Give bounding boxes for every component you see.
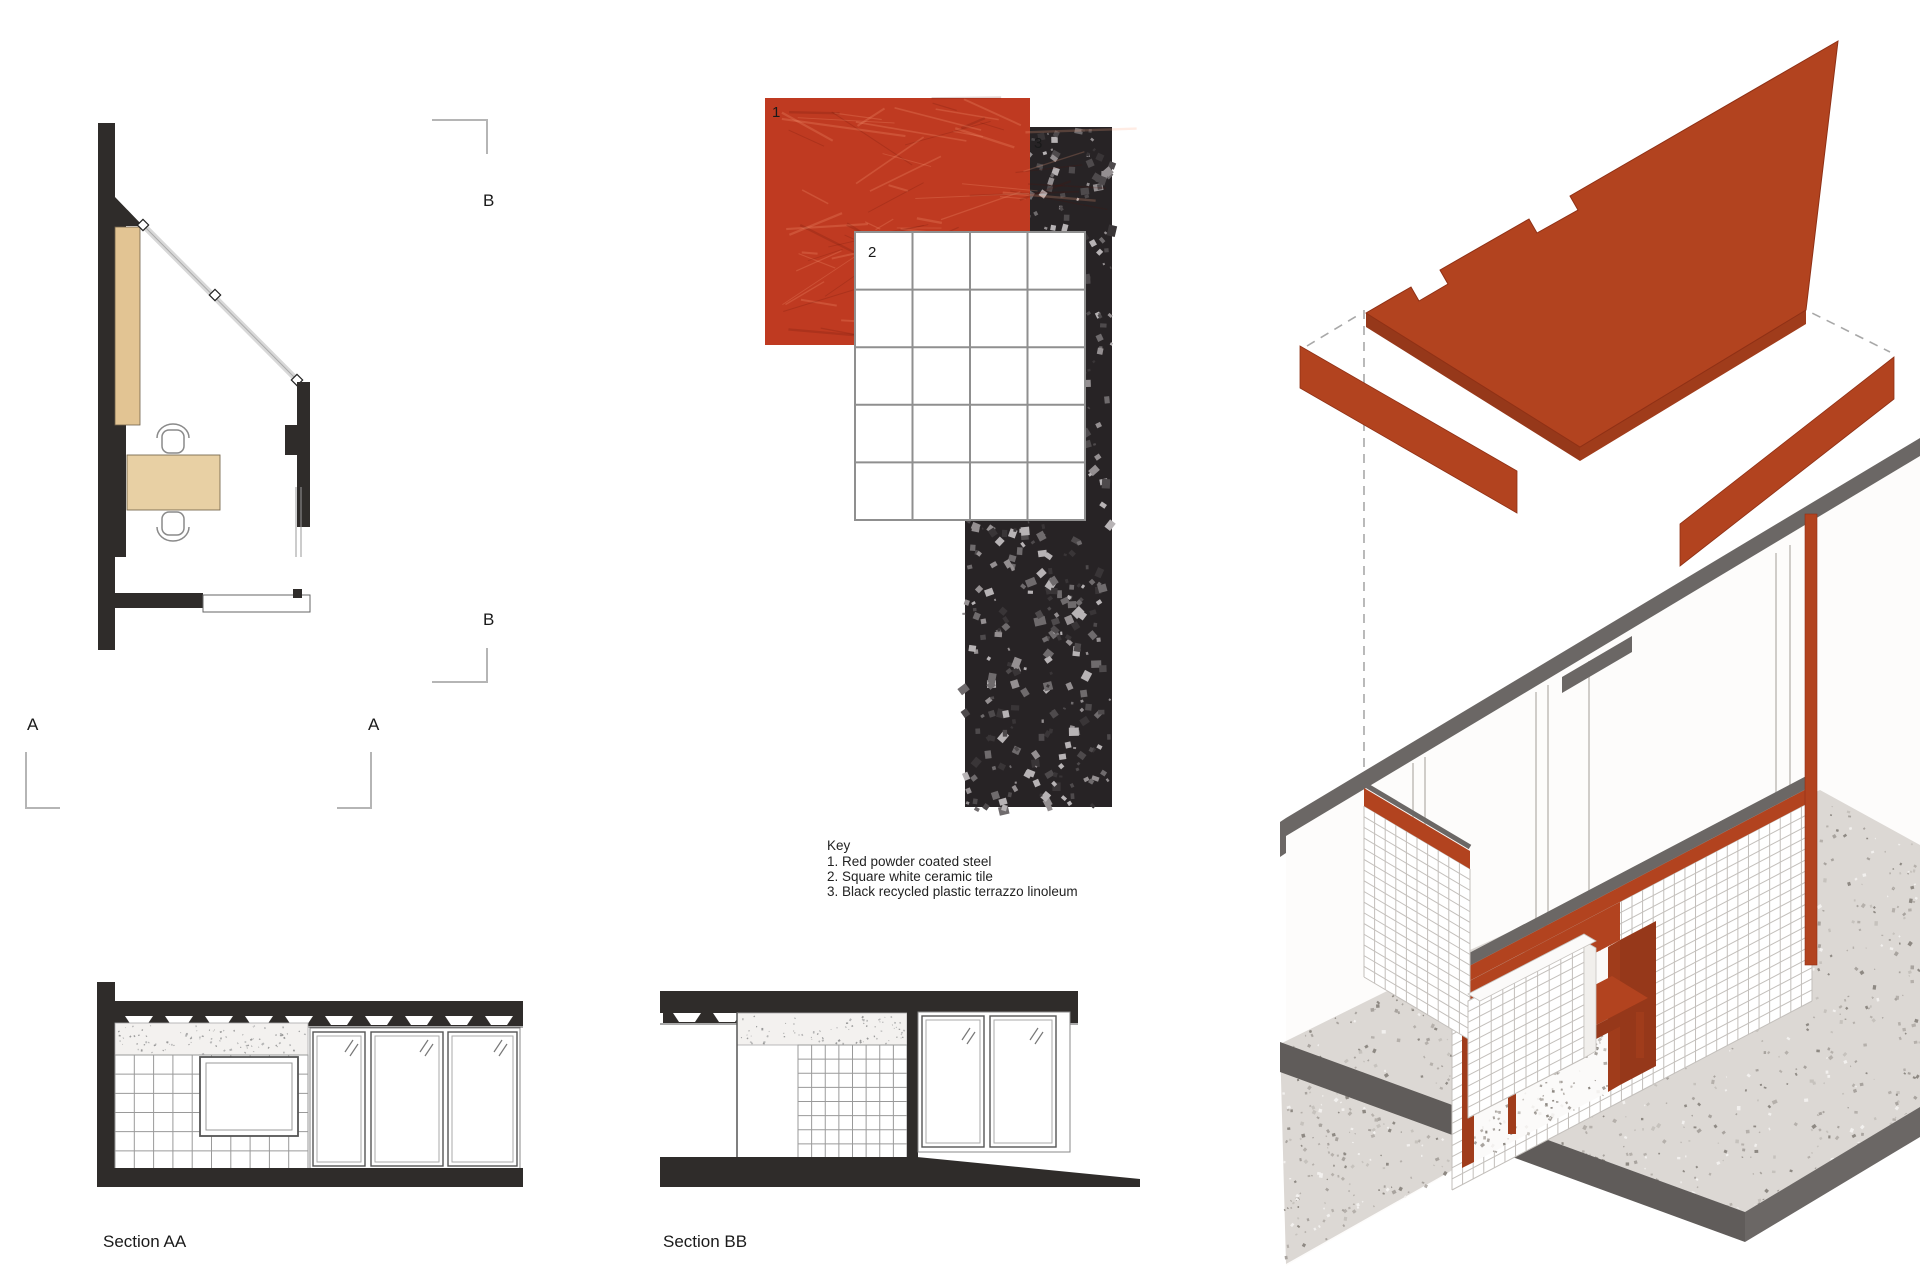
section-bb-drawing: Section BB: [660, 991, 1140, 1251]
section-bb-wall: [907, 1010, 918, 1160]
section-marker-b-bottom: B: [483, 610, 494, 629]
key-item: 2. Square white ceramic tile: [827, 869, 1078, 884]
plan-chair: [157, 512, 189, 541]
plan-chair: [157, 424, 189, 453]
section-marker-a-left: A: [27, 715, 39, 734]
section-marker-b-top: B: [483, 191, 494, 210]
plan-desk: [127, 455, 220, 510]
swatch-label-terrazzo: 3: [1034, 135, 1042, 152]
key-block: Key 1. Red powder coated steel 2. Square…: [827, 838, 1078, 899]
section-bb-floor-ramp: [660, 1157, 1140, 1187]
axon-roof-assembly: [1300, 41, 1894, 566]
key-heading: Key: [827, 838, 1078, 853]
key-item: 1. Red powder coated steel: [827, 854, 1078, 869]
section-aa-glazing: [313, 1032, 517, 1166]
roof-plate: [1366, 41, 1838, 447]
axon-red-door-frame: [1805, 514, 1817, 965]
counter-leg: [1636, 1012, 1644, 1058]
drawing-sheet: 1 2 3: [0, 0, 1920, 1280]
plan-glazed-wall: [137, 219, 302, 385]
section-cut-brackets: [26, 120, 487, 808]
key-item: 3. Black recycled plastic terrazzo linol…: [827, 884, 1078, 899]
section-bb-label: Section BB: [663, 1232, 747, 1251]
axonometric-drawing: [1280, 41, 1920, 1266]
section-marker-a-right: A: [368, 715, 380, 734]
section-aa-label: Section AA: [103, 1232, 187, 1251]
swatch-label-tile: 2: [868, 244, 876, 261]
material-swatch-tile: [855, 232, 1085, 520]
swatch-label-red: 1: [772, 104, 780, 121]
section-aa-drawing: Section AA: [97, 982, 523, 1251]
architectural-drawing: 1 2 3: [0, 0, 1920, 1280]
axon-room-volume: [1280, 438, 1920, 1266]
floor-plan: B B A A: [26, 120, 494, 808]
plan-west-wall: [98, 123, 115, 650]
plan-wood-panel: [115, 227, 140, 425]
plan-south-wall: [115, 593, 203, 608]
